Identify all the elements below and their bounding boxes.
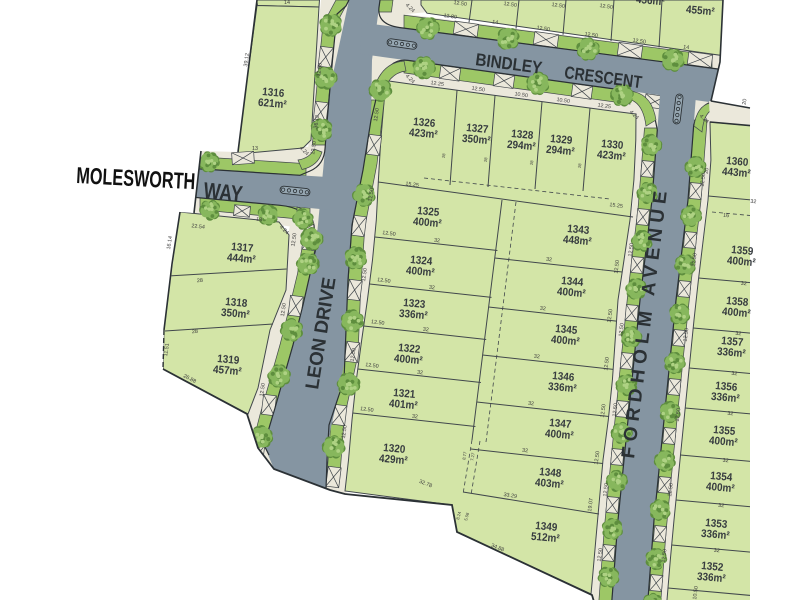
svg-text:32: 32 [740,281,747,288]
svg-text:13: 13 [256,217,263,224]
svg-text:14: 14 [284,0,290,6]
svg-text:14: 14 [492,19,499,26]
svg-text:32: 32 [428,285,435,292]
svg-text:28: 28 [192,329,198,335]
svg-text:16: 16 [723,213,730,220]
svg-text:14: 14 [683,44,690,51]
svg-text:32: 32 [750,199,757,206]
svg-text:13: 13 [252,146,258,152]
svg-text:32: 32 [522,448,529,455]
svg-text:32: 32 [727,411,734,418]
svg-text:20: 20 [704,167,711,174]
svg-text:20: 20 [742,98,749,105]
svg-text:32: 32 [718,503,725,510]
svg-text:32: 32 [731,371,738,378]
svg-text:32: 32 [422,327,429,334]
svg-text:32: 32 [417,370,424,377]
svg-text:28: 28 [197,278,203,284]
svg-text:32: 32 [533,354,540,361]
svg-text:32: 32 [411,414,418,421]
svg-text:32: 32 [713,548,720,555]
svg-text:32: 32 [722,458,729,465]
svg-text:32: 32 [539,306,546,313]
svg-text:WAY: WAY [202,177,244,207]
svg-text:32: 32 [546,257,553,264]
svg-text:32: 32 [434,238,441,245]
svg-text:32: 32 [735,331,742,338]
svg-text:32: 32 [528,401,535,408]
